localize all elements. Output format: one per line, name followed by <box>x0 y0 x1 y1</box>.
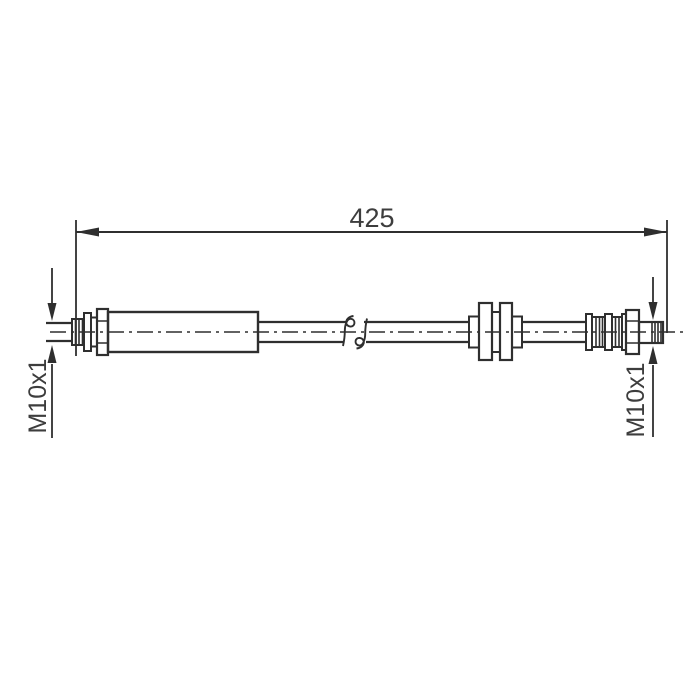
left-thread-callout: M10x1 <box>24 268 57 438</box>
right-thread-callout: M10x1 <box>622 277 658 438</box>
right-crimp-hatching-2 <box>616 318 620 346</box>
length-dimension: 425 <box>76 203 667 356</box>
right-callout-down-arrowhead-icon <box>649 302 658 320</box>
dimension-arrowhead-right-icon <box>644 228 667 237</box>
length-dimension-label: 425 <box>349 203 394 233</box>
left-thread-label: M10x1 <box>24 358 52 433</box>
left-callout-down-arrowhead-icon <box>48 303 57 321</box>
right-callout-up-arrowhead-icon <box>649 346 658 364</box>
break-symbol-left-icon <box>343 316 354 346</box>
technical-drawing: 425 <box>0 0 700 700</box>
right-thread-label: M10x1 <box>622 362 650 437</box>
dimension-arrowhead-left-icon <box>76 228 99 237</box>
product-image: 425 <box>0 0 700 700</box>
